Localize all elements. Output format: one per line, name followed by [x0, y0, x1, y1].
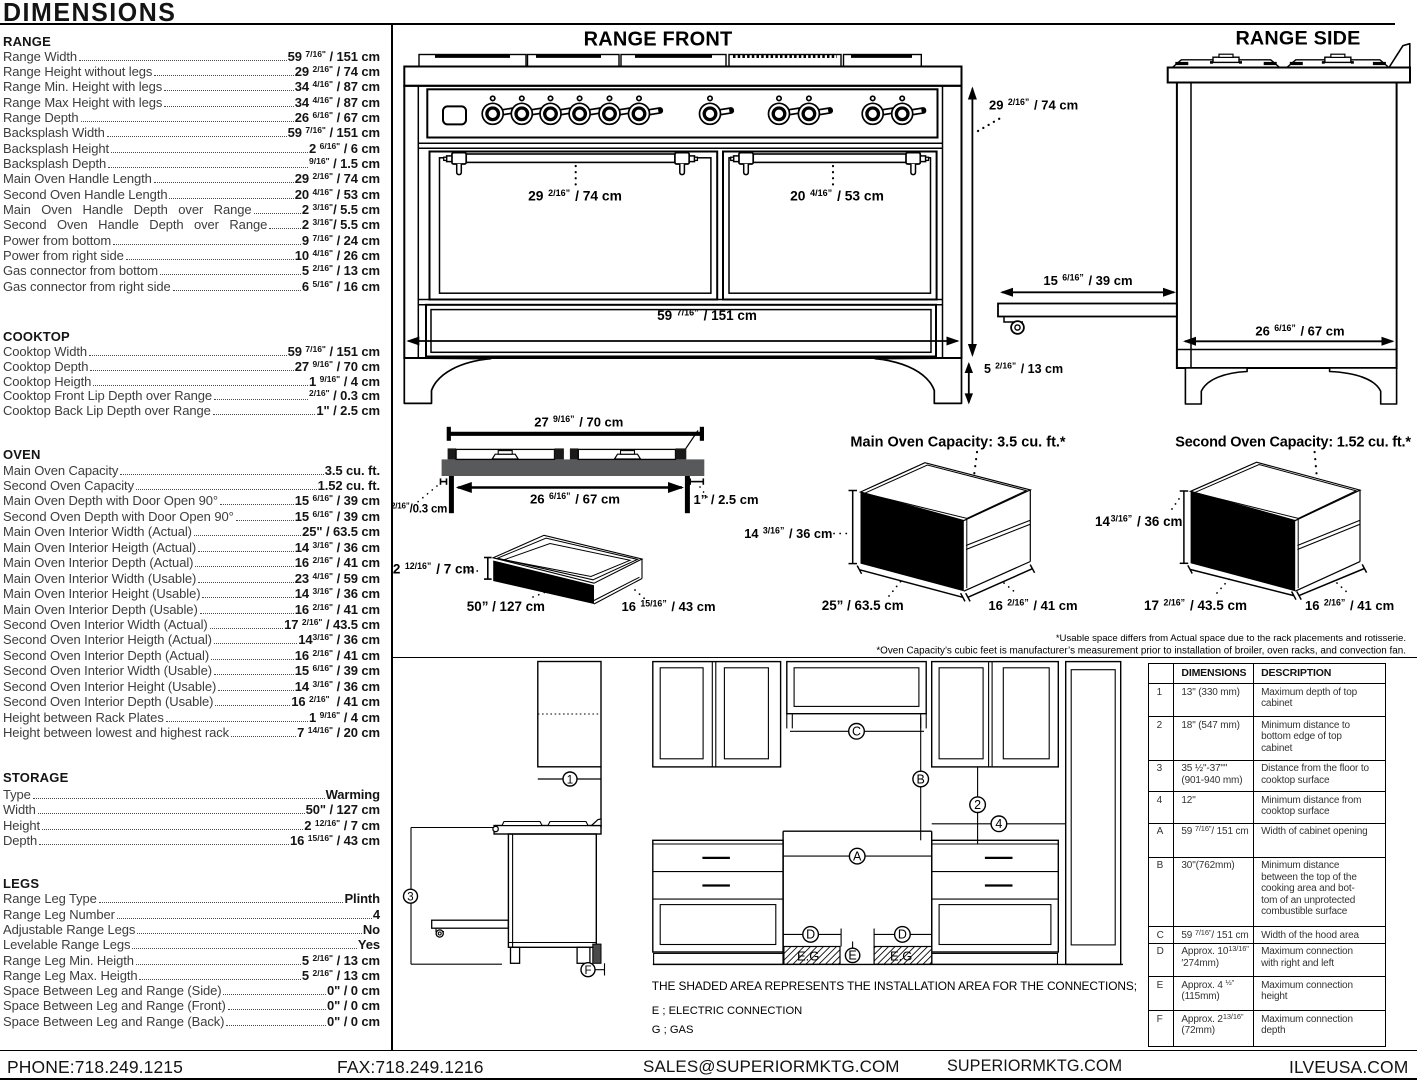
svg-text:C: C: [852, 725, 861, 739]
svg-text:D: D: [898, 928, 907, 942]
svg-text:1” / 2.5 cm: 1” / 2.5 cm: [694, 492, 759, 507]
svg-text:26 6/16” / 67 cm: 26 6/16” / 67 cm: [530, 491, 620, 507]
svg-text:2/16”/0.3 cm: 2/16”/0.3 cm: [391, 502, 447, 516]
svg-text:RANGE FRONT: RANGE FRONT: [584, 29, 733, 51]
svg-text:50” / 127 cm: 50” / 127 cm: [467, 599, 545, 614]
svg-text:THE SHADED AREA REPRESENTS THE: THE SHADED AREA REPRESENTS THE INSTALLAT…: [652, 979, 1137, 993]
svg-text:*Usable space differs from Act: *Usable space differs from Actual space …: [1056, 633, 1406, 644]
svg-text:2: 2: [974, 798, 981, 812]
svg-text:26 6/16” / 67 cm: 26 6/16” / 67 cm: [1255, 323, 1344, 339]
svg-text:*Oven Capacity’s cubic feet is: *Oven Capacity’s cubic feet is manufactu…: [876, 646, 1406, 657]
svg-text:A: A: [853, 849, 862, 863]
svg-text:17 2/16” / 43.5 cm: 17 2/16” / 43.5 cm: [1144, 598, 1247, 614]
svg-text:29 2/16” / 74 cm: 29 2/16” / 74 cm: [528, 188, 622, 204]
svg-text:E.G: E.G: [890, 949, 912, 964]
svg-text:Main Oven Capacity: 3.5 cu. ft: Main Oven Capacity: 3.5 cu. ft.*: [850, 435, 1065, 451]
svg-text:20 4/16” / 53 cm: 20 4/16” / 53 cm: [790, 188, 884, 204]
svg-text:Second Oven Capacity: 1.52 cu.: Second Oven Capacity: 1.52 cu. ft.*: [1175, 435, 1411, 451]
svg-text:14 3/16” / 36 cm: 14 3/16” / 36 cm: [744, 526, 832, 542]
svg-text:E.G: E.G: [797, 949, 819, 964]
svg-text:3: 3: [407, 892, 413, 904]
svg-text:RANGE SIDE: RANGE SIDE: [1235, 28, 1360, 50]
svg-text:4: 4: [995, 817, 1002, 831]
svg-text:F: F: [584, 965, 591, 977]
svg-text:16 15/16” / 43 cm: 16 15/16” / 43 cm: [622, 599, 716, 615]
svg-text:5 2/16” / 13 cm: 5 2/16” / 13 cm: [984, 360, 1063, 376]
svg-text:D: D: [806, 928, 815, 942]
svg-text:16 2/16” / 41 cm: 16 2/16” / 41 cm: [988, 598, 1077, 614]
svg-text:B: B: [917, 772, 925, 786]
svg-text:59 7/16” / 151 cm: 59 7/16” / 151 cm: [657, 308, 757, 324]
svg-text:29 2/16” / 74 cm: 29 2/16” / 74 cm: [989, 97, 1078, 113]
svg-text:16 2/16” / 41 cm: 16 2/16” / 41 cm: [1305, 598, 1394, 614]
svg-text:1: 1: [567, 774, 573, 786]
svg-text:15 6/16” / 39 cm: 15 6/16” / 39 cm: [1043, 273, 1132, 289]
svg-text:E ; ELECTRIC CONNECTION: E ; ELECTRIC CONNECTION: [652, 1005, 802, 1017]
svg-text:14 3/16” / 36 cm: 14 3/16” / 36 cm: [1095, 514, 1183, 530]
svg-text:2 12/16” / 7 cm: 2 12/16” / 7 cm: [393, 561, 475, 577]
svg-text:G ; GAS: G ; GAS: [652, 1024, 694, 1036]
svg-text:E: E: [848, 949, 856, 963]
svg-text:25” / 63.5 cm: 25” / 63.5 cm: [822, 598, 904, 613]
svg-text:27 9/16” / 70 cm: 27 9/16” / 70 cm: [534, 414, 623, 430]
